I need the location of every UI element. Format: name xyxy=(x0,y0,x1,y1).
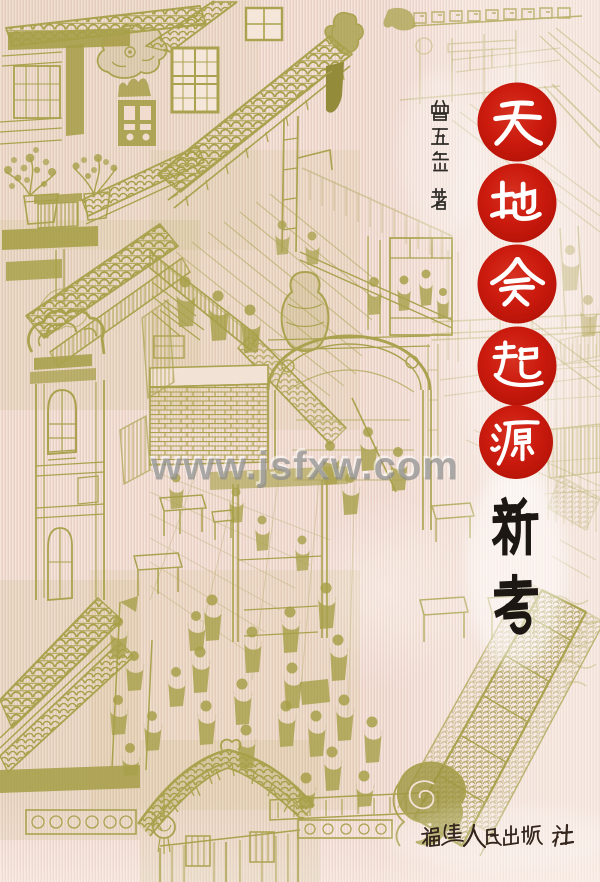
svg-text:www.jsfxw.com: www.jsfxw.com xyxy=(150,445,459,489)
